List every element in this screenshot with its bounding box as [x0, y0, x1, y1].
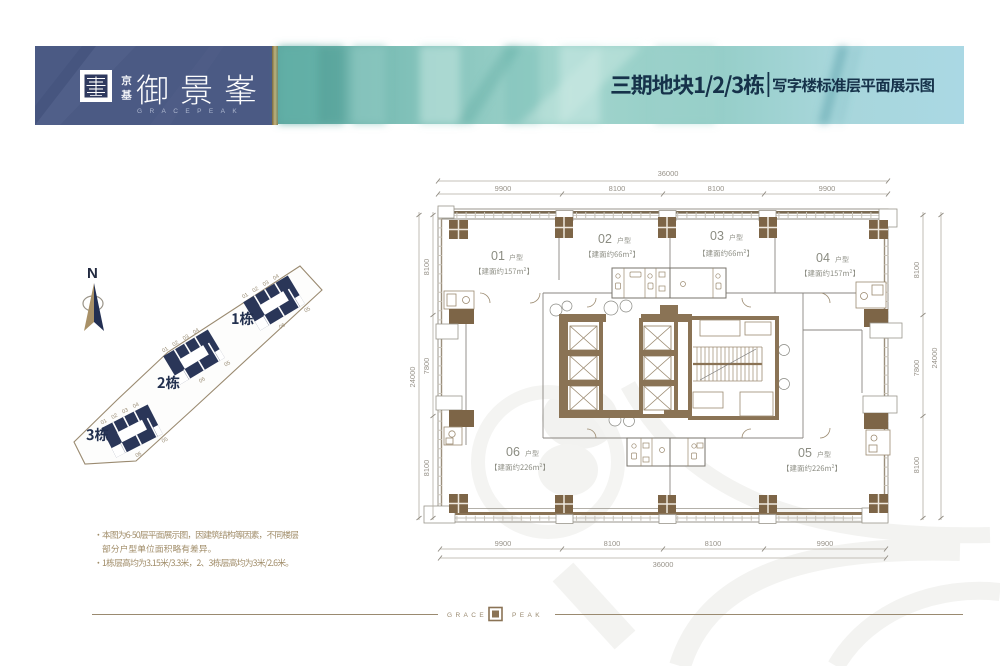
svg-text:8100: 8100	[422, 460, 431, 477]
svg-text:24000: 24000	[408, 367, 417, 388]
svg-text:36000: 36000	[653, 560, 674, 569]
svg-text:9900: 9900	[817, 539, 834, 548]
svg-text:04: 04	[816, 251, 830, 265]
svg-text:01: 01	[491, 249, 505, 263]
svg-text:8100: 8100	[912, 262, 921, 279]
svg-text:N: N	[87, 265, 98, 282]
svg-text:8100: 8100	[422, 259, 431, 276]
svg-text:24000: 24000	[930, 348, 939, 369]
svg-text:05: 05	[798, 446, 812, 460]
svg-text:7800: 7800	[422, 358, 431, 375]
svg-text:GRACE: GRACE	[447, 612, 487, 619]
svg-text:06: 06	[506, 445, 520, 459]
svg-text:8100: 8100	[705, 539, 722, 548]
svg-text:7800: 7800	[912, 360, 921, 377]
svg-text:PEAK: PEAK	[512, 612, 543, 619]
svg-text:8100: 8100	[604, 539, 621, 548]
svg-text:9900: 9900	[495, 539, 512, 548]
svg-text:03: 03	[710, 229, 724, 243]
svg-text:8100: 8100	[708, 184, 725, 193]
svg-text:8100: 8100	[912, 457, 921, 474]
svg-text:9900: 9900	[495, 184, 512, 193]
svg-text:9900: 9900	[819, 184, 836, 193]
svg-text:36000: 36000	[658, 169, 679, 178]
svg-text:GRACEPEAK: GRACEPEAK	[137, 108, 244, 115]
svg-text:02: 02	[598, 232, 612, 246]
svg-text:8100: 8100	[609, 184, 626, 193]
